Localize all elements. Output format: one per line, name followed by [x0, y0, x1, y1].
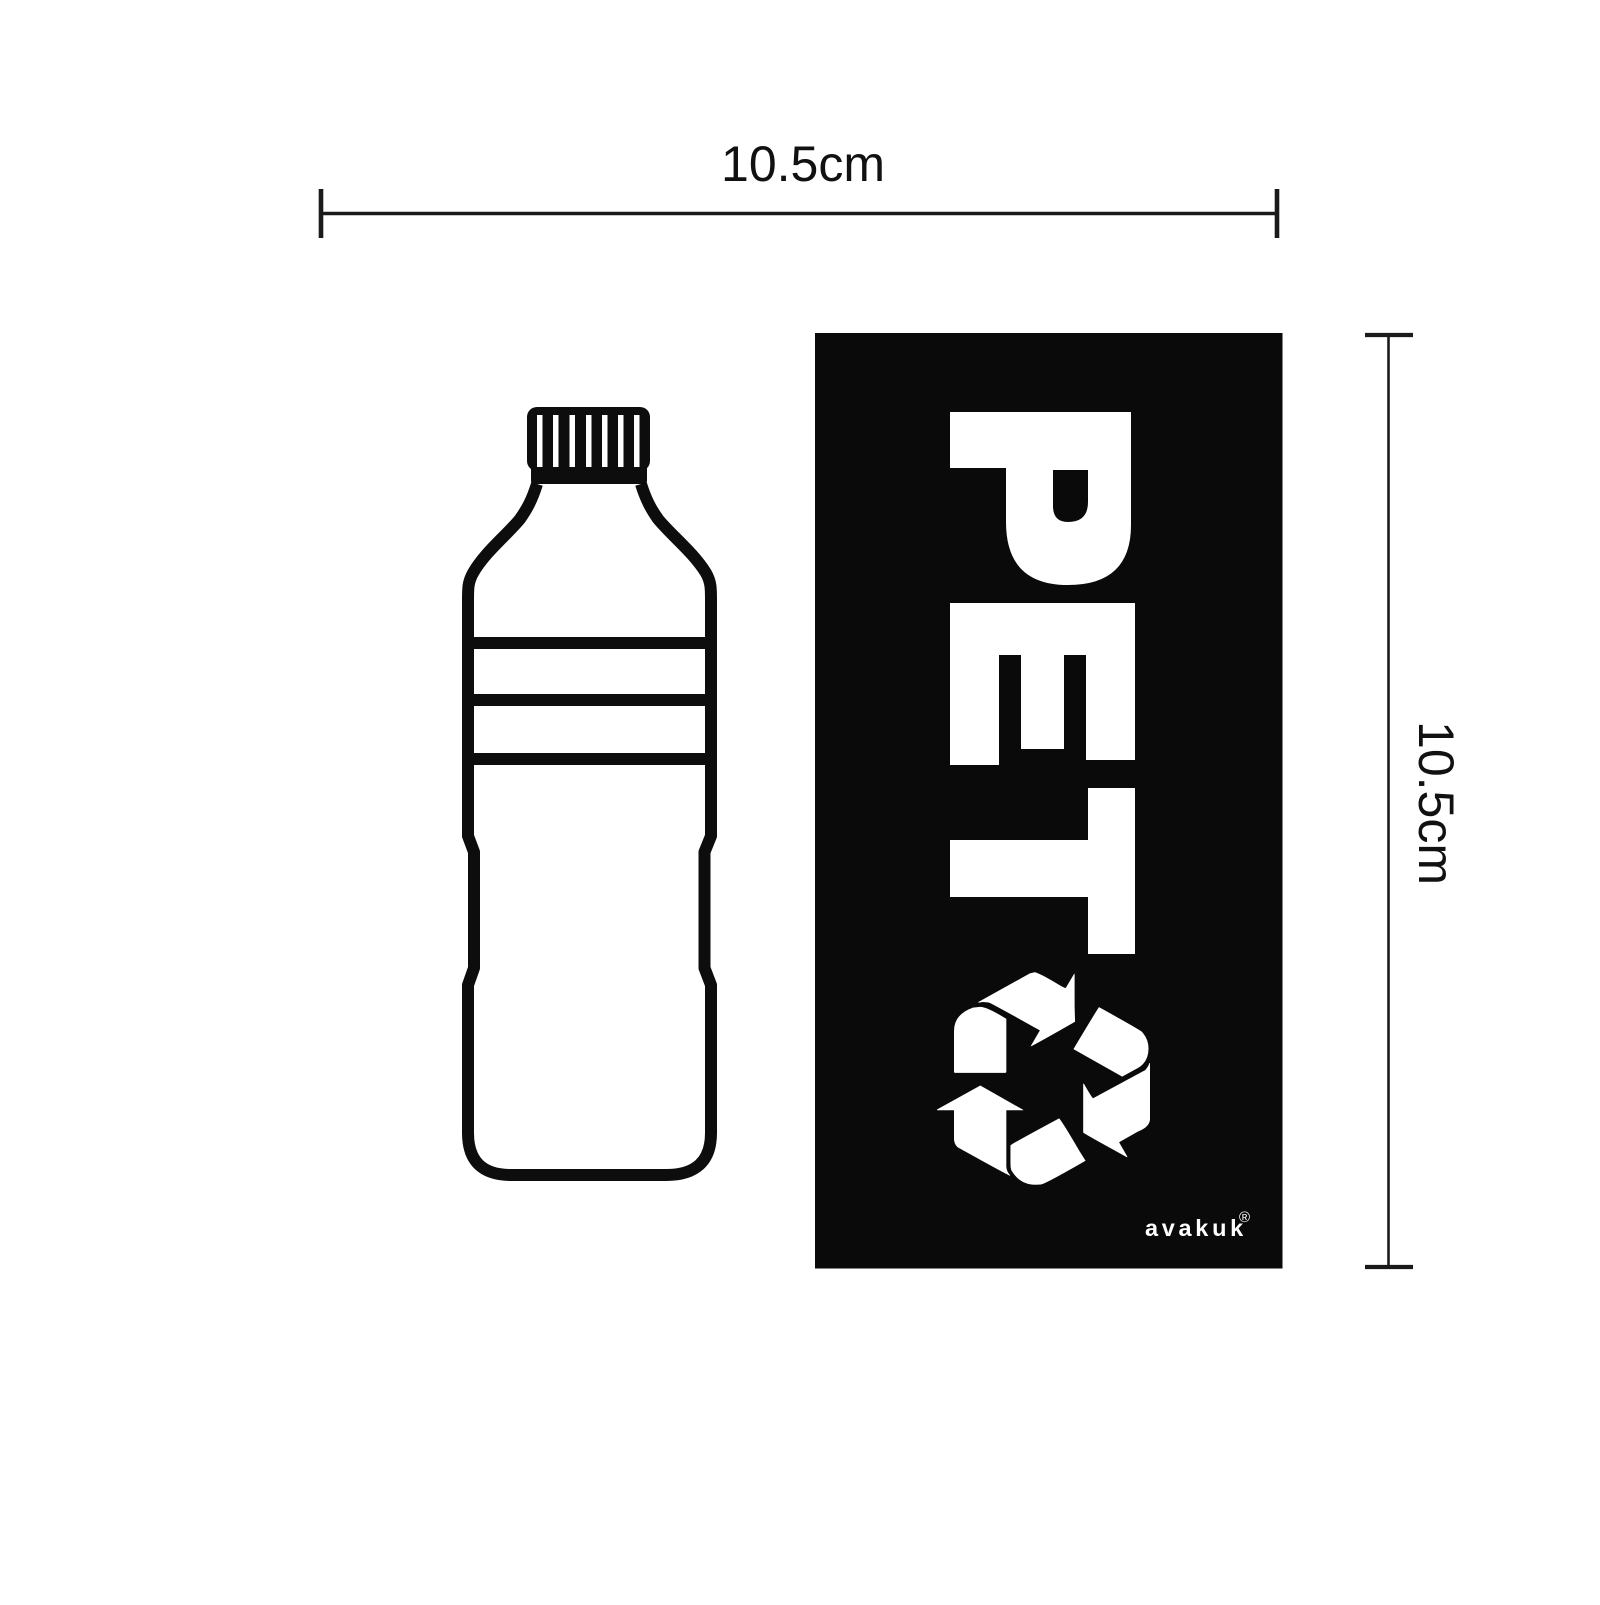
svg-text:10.5cm: 10.5cm [721, 136, 885, 192]
svg-text:®: ® [1239, 1209, 1250, 1226]
svg-text:10.5cm: 10.5cm [1408, 721, 1464, 885]
svg-text:avakuk: avakuk [1145, 1215, 1247, 1241]
